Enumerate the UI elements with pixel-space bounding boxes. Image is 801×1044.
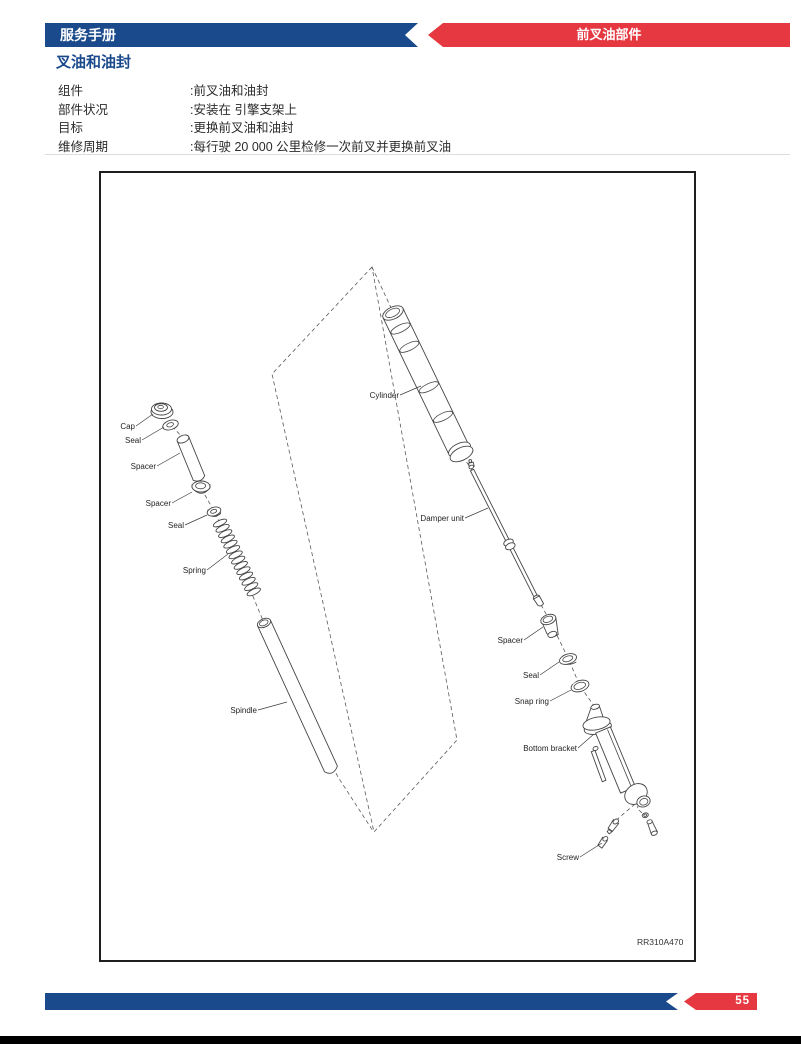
spec-row: 部件状况:安装在 引擎支架上 <box>58 101 451 120</box>
label-spindle: Spindle <box>230 706 257 715</box>
spec-row: 目标:更换前叉油和油封 <box>58 119 451 138</box>
spec-value: :前叉油和油封 <box>190 84 268 98</box>
label-screw: Screw <box>557 853 579 862</box>
chapter-title: 前叉油部件 <box>576 27 641 42</box>
part-seal-right <box>558 652 578 667</box>
part-seal-top <box>161 418 179 432</box>
label-seal-right: Seal <box>523 671 539 680</box>
spec-label: 部件状况 <box>58 101 190 120</box>
spec-label: 目标 <box>58 119 190 138</box>
spec-value: :安装在 引擎支架上 <box>190 103 297 117</box>
part-seal-mid <box>206 505 222 517</box>
header-banner-left: 服务手册 <box>45 23 418 47</box>
header-banner-right: 前叉油部件 <box>428 23 790 47</box>
figure-code: RR310A470 <box>637 937 684 947</box>
spec-row: 组件:前叉油和油封 <box>58 82 451 101</box>
label-snap-ring: Snap ring <box>515 697 549 706</box>
spec-value: :更换前叉油和油封 <box>190 121 293 135</box>
part-damper-unit <box>468 460 543 606</box>
manual-title: 服务手册 <box>60 27 116 43</box>
part-spacer-right <box>539 612 558 638</box>
part-spindle <box>256 616 338 773</box>
part-cylinder <box>380 303 475 465</box>
reference-plane-outline <box>272 267 457 832</box>
part-spring <box>212 518 261 598</box>
part-cap <box>151 403 173 419</box>
spec-table: 组件:前叉油和油封 部件状况:安装在 引擎支架上 目标:更换前叉油和油封 维修周… <box>58 82 451 156</box>
part-spacer-ring <box>192 481 210 493</box>
page-bottom-rule <box>0 1036 801 1044</box>
part-screws <box>598 812 658 848</box>
label-spring: Spring <box>183 566 206 575</box>
label-spacer-right: Spacer <box>498 636 524 645</box>
spec-label: 组件 <box>58 82 190 101</box>
label-spacer-ring: Spacer <box>146 499 172 508</box>
exploded-diagram: Cap Seal Spacer Spacer Seal Spring Spind… <box>101 173 698 964</box>
page-title: 叉油和油封 <box>56 51 131 72</box>
label-bottom-bracket: Bottom bracket <box>523 744 578 753</box>
label-seal-top: Seal <box>125 436 141 445</box>
page-number: 55 <box>735 995 750 1007</box>
label-cap: Cap <box>120 422 135 431</box>
footer-banner <box>45 993 678 1010</box>
part-spacer-tube <box>176 433 205 481</box>
label-cylinder: Cylinder <box>370 391 400 400</box>
part-snap-ring <box>570 678 591 694</box>
page-number-badge: 55 <box>684 993 757 1010</box>
divider-line <box>45 154 790 155</box>
label-damper-unit: Damper unit <box>420 514 464 523</box>
exploded-diagram-frame: Cap Seal Spacer Spacer Seal Spring Spind… <box>99 171 696 962</box>
label-seal-mid: Seal <box>168 521 184 530</box>
left-assembly-axis <box>154 405 373 831</box>
part-bottom-bracket <box>582 703 652 809</box>
label-spacer-tube: Spacer <box>131 462 157 471</box>
spec-value: :每行驶 20 000 公里检修一次前叉并更换前叉油 <box>190 140 451 154</box>
